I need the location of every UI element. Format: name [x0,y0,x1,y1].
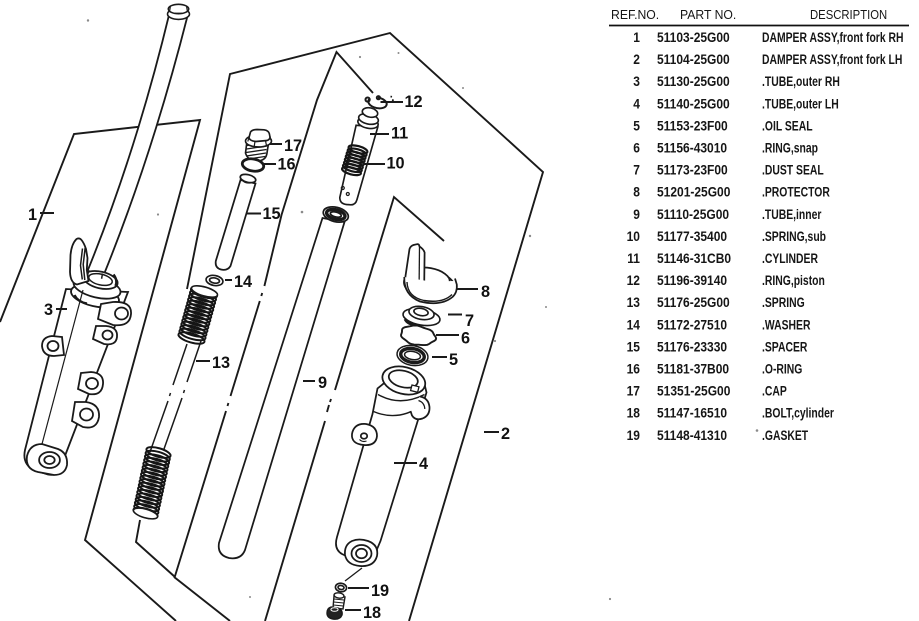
svg-text:6: 6 [461,330,470,348]
svg-text:13: 13 [627,295,640,311]
svg-text:3: 3 [633,74,640,90]
svg-text:19: 19 [627,427,640,443]
svg-text:12: 12 [627,272,640,288]
svg-text:15: 15 [627,339,640,355]
svg-text:51172-27510: 51172-27510 [657,317,727,333]
svg-text:5: 5 [633,118,640,134]
svg-text:.GASKET: .GASKET [762,427,809,443]
svg-text:8: 8 [633,184,640,200]
svg-text:2: 2 [633,51,640,67]
svg-text:11: 11 [627,250,640,266]
svg-text:51201-25G00: 51201-25G00 [657,184,730,200]
svg-text:14: 14 [627,317,641,333]
svg-text:18: 18 [627,405,640,421]
svg-text:51148-41310: 51148-41310 [657,427,727,443]
svg-text:.SPACER: .SPACER [762,339,808,355]
svg-text:7: 7 [633,162,640,178]
svg-text:51351-25G00: 51351-25G00 [657,383,730,399]
svg-text:51146-31CB0: 51146-31CB0 [657,250,731,266]
svg-text:.CAP: .CAP [762,383,787,399]
svg-text:51130-25G00: 51130-25G00 [657,74,730,90]
svg-text:6: 6 [633,140,640,156]
svg-text:5: 5 [449,351,458,369]
svg-text:.TUBE,outer LH: .TUBE,outer LH [762,96,839,112]
svg-text:51177-35400: 51177-35400 [657,228,727,244]
svg-text:9: 9 [633,206,640,222]
svg-text:11: 11 [391,125,408,143]
svg-text:51103-25G00: 51103-25G00 [657,29,730,45]
svg-text:13: 13 [212,354,230,372]
svg-text:.SPRING: .SPRING [762,295,805,311]
svg-text:8: 8 [481,283,490,301]
svg-text:3: 3 [44,301,53,319]
svg-text:1: 1 [633,29,640,45]
svg-text:51153-23F00: 51153-23F00 [657,118,728,134]
svg-text:51173-23F00: 51173-23F00 [657,162,728,178]
svg-text:17: 17 [284,137,302,155]
svg-text:.SPRING,sub: .SPRING,sub [762,229,826,245]
svg-text:2: 2 [501,425,510,443]
svg-text:.TUBE,inner: .TUBE,inner [762,206,822,222]
svg-text:51176-23330: 51176-23330 [657,339,727,355]
svg-text:.RING,piston: .RING,piston [762,273,825,289]
svg-text:.OIL SEAL: .OIL SEAL [762,118,813,134]
svg-text:DAMPER ASSY,front fork RH: DAMPER ASSY,front fork RH [762,30,903,46]
svg-text:DAMPER ASSY,front fork LH: DAMPER ASSY,front fork LH [762,52,902,68]
svg-text:.WASHER: .WASHER [762,317,811,333]
svg-text:9: 9 [318,374,327,392]
svg-text:51104-25G00: 51104-25G00 [657,51,730,67]
svg-text:51196-39140: 51196-39140 [657,272,727,288]
svg-text:16: 16 [627,361,640,377]
svg-text:51156-43010: 51156-43010 [657,140,727,156]
svg-text:14: 14 [234,273,252,291]
svg-text:7: 7 [465,312,474,330]
svg-text:1: 1 [28,206,37,224]
svg-text:10: 10 [387,155,405,173]
svg-text:12: 12 [405,93,423,111]
svg-text:REF.NO.: REF.NO. [611,8,659,22]
svg-text:17: 17 [627,383,640,399]
svg-text:.RING,snap: .RING,snap [762,140,818,156]
svg-text:51181-37B00: 51181-37B00 [657,361,729,377]
svg-text:.CYLINDER: .CYLINDER [762,251,818,267]
svg-text:.BOLT,cylinder: .BOLT,cylinder [762,405,834,421]
svg-text:18: 18 [363,604,381,621]
svg-text:51147-16510: 51147-16510 [657,405,727,421]
svg-text:DESCRIPTION: DESCRIPTION [810,7,887,22]
svg-text:PART NO.: PART NO. [680,8,736,22]
svg-text:51110-25G00: 51110-25G00 [657,206,729,222]
svg-text:51176-25G00: 51176-25G00 [657,295,730,311]
svg-text:4: 4 [633,96,641,112]
svg-text:19: 19 [371,582,389,600]
svg-text:15: 15 [263,205,281,223]
svg-text:4: 4 [419,455,428,473]
svg-text:.O-RING: .O-RING [762,361,802,377]
svg-text:.TUBE,outer RH: .TUBE,outer RH [762,74,840,90]
svg-text:16: 16 [278,156,296,174]
svg-text:51140-25G00: 51140-25G00 [657,96,730,112]
svg-text:.DUST SEAL: .DUST SEAL [762,162,824,178]
svg-text:.PROTECTOR: .PROTECTOR [762,184,830,200]
svg-text:10: 10 [627,228,640,244]
